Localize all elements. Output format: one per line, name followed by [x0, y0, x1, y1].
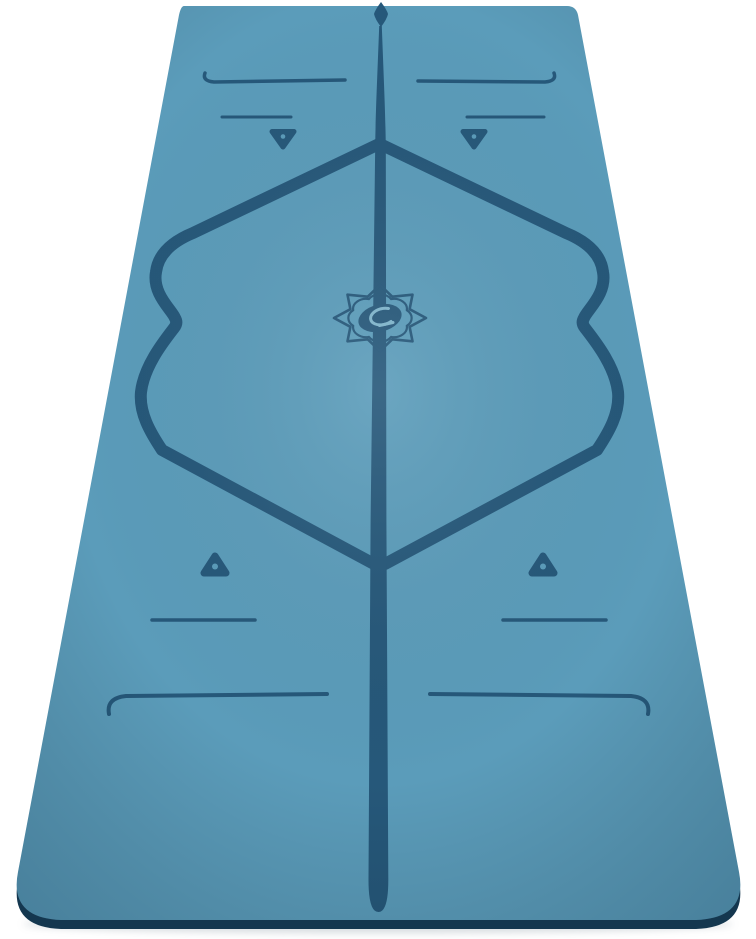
mat-lighting-vignette — [17, 6, 741, 920]
yoga-mat-illustration — [0, 0, 756, 939]
product-photo — [0, 0, 756, 939]
